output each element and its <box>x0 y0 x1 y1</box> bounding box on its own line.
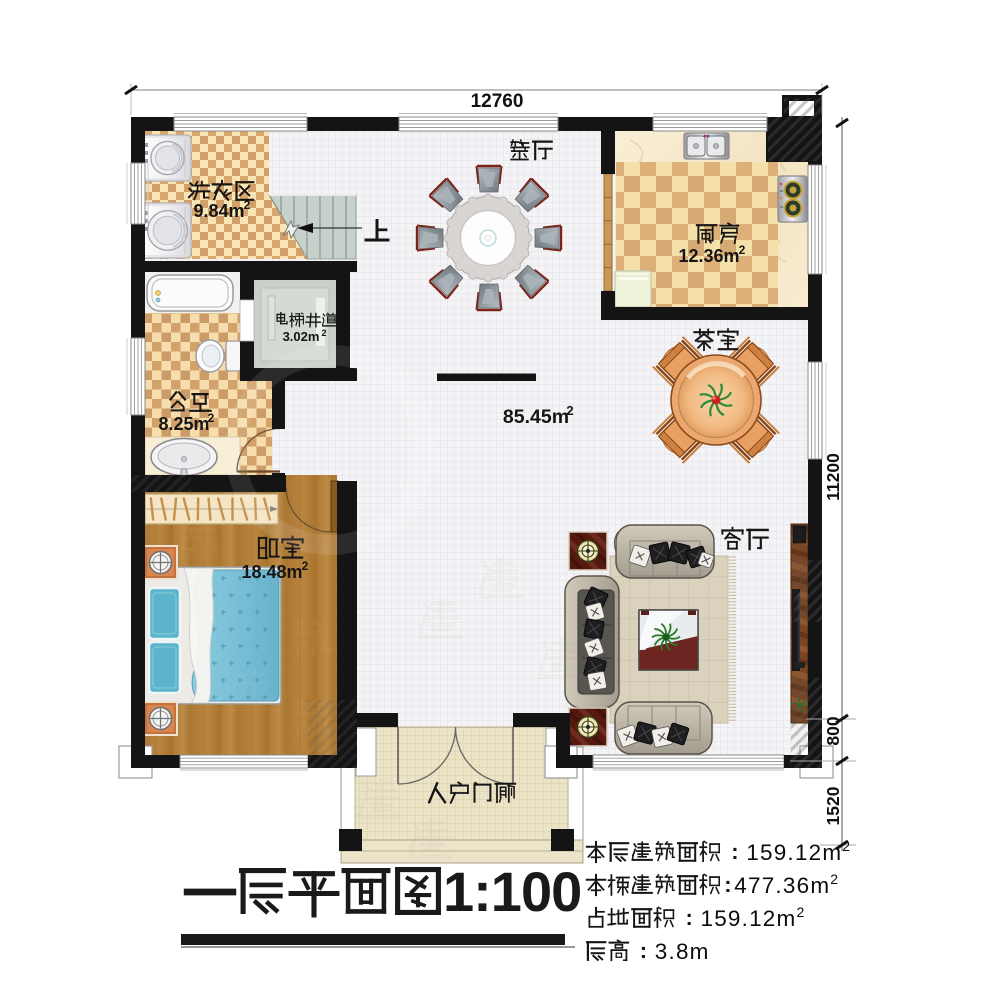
svg-text:2: 2 <box>739 243 746 257</box>
svg-text::: : <box>686 905 693 930</box>
svg-text:159.12m2: 159.12m2 <box>701 904 806 931</box>
svg-text:11200: 11200 <box>823 453 843 501</box>
svg-text:800: 800 <box>823 716 843 745</box>
svg-text:159.12m2: 159.12m2 <box>746 838 851 865</box>
svg-text:1:100: 1:100 <box>443 860 581 923</box>
svg-text::: : <box>731 839 738 864</box>
svg-text:2: 2 <box>566 403 573 418</box>
svg-text:18.48m: 18.48m <box>241 562 302 582</box>
svg-text:12760: 12760 <box>471 91 524 112</box>
svg-text:2: 2 <box>244 198 251 212</box>
svg-text:2: 2 <box>208 411 215 425</box>
svg-text:3.8m: 3.8m <box>655 939 710 964</box>
svg-text:9.84m: 9.84m <box>193 201 244 221</box>
svg-text::: : <box>724 872 731 897</box>
svg-text:1520: 1520 <box>823 786 843 825</box>
svg-text::: : <box>640 938 647 963</box>
svg-text:12.36m: 12.36m <box>678 246 739 266</box>
svg-text:3.02m: 3.02m <box>283 329 320 344</box>
svg-text:2: 2 <box>302 559 309 573</box>
svg-text:2: 2 <box>321 328 326 338</box>
svg-text:85.45m: 85.45m <box>503 406 569 428</box>
svg-text:8.25m: 8.25m <box>158 414 209 434</box>
svg-text:477.36m2: 477.36m2 <box>734 871 839 898</box>
